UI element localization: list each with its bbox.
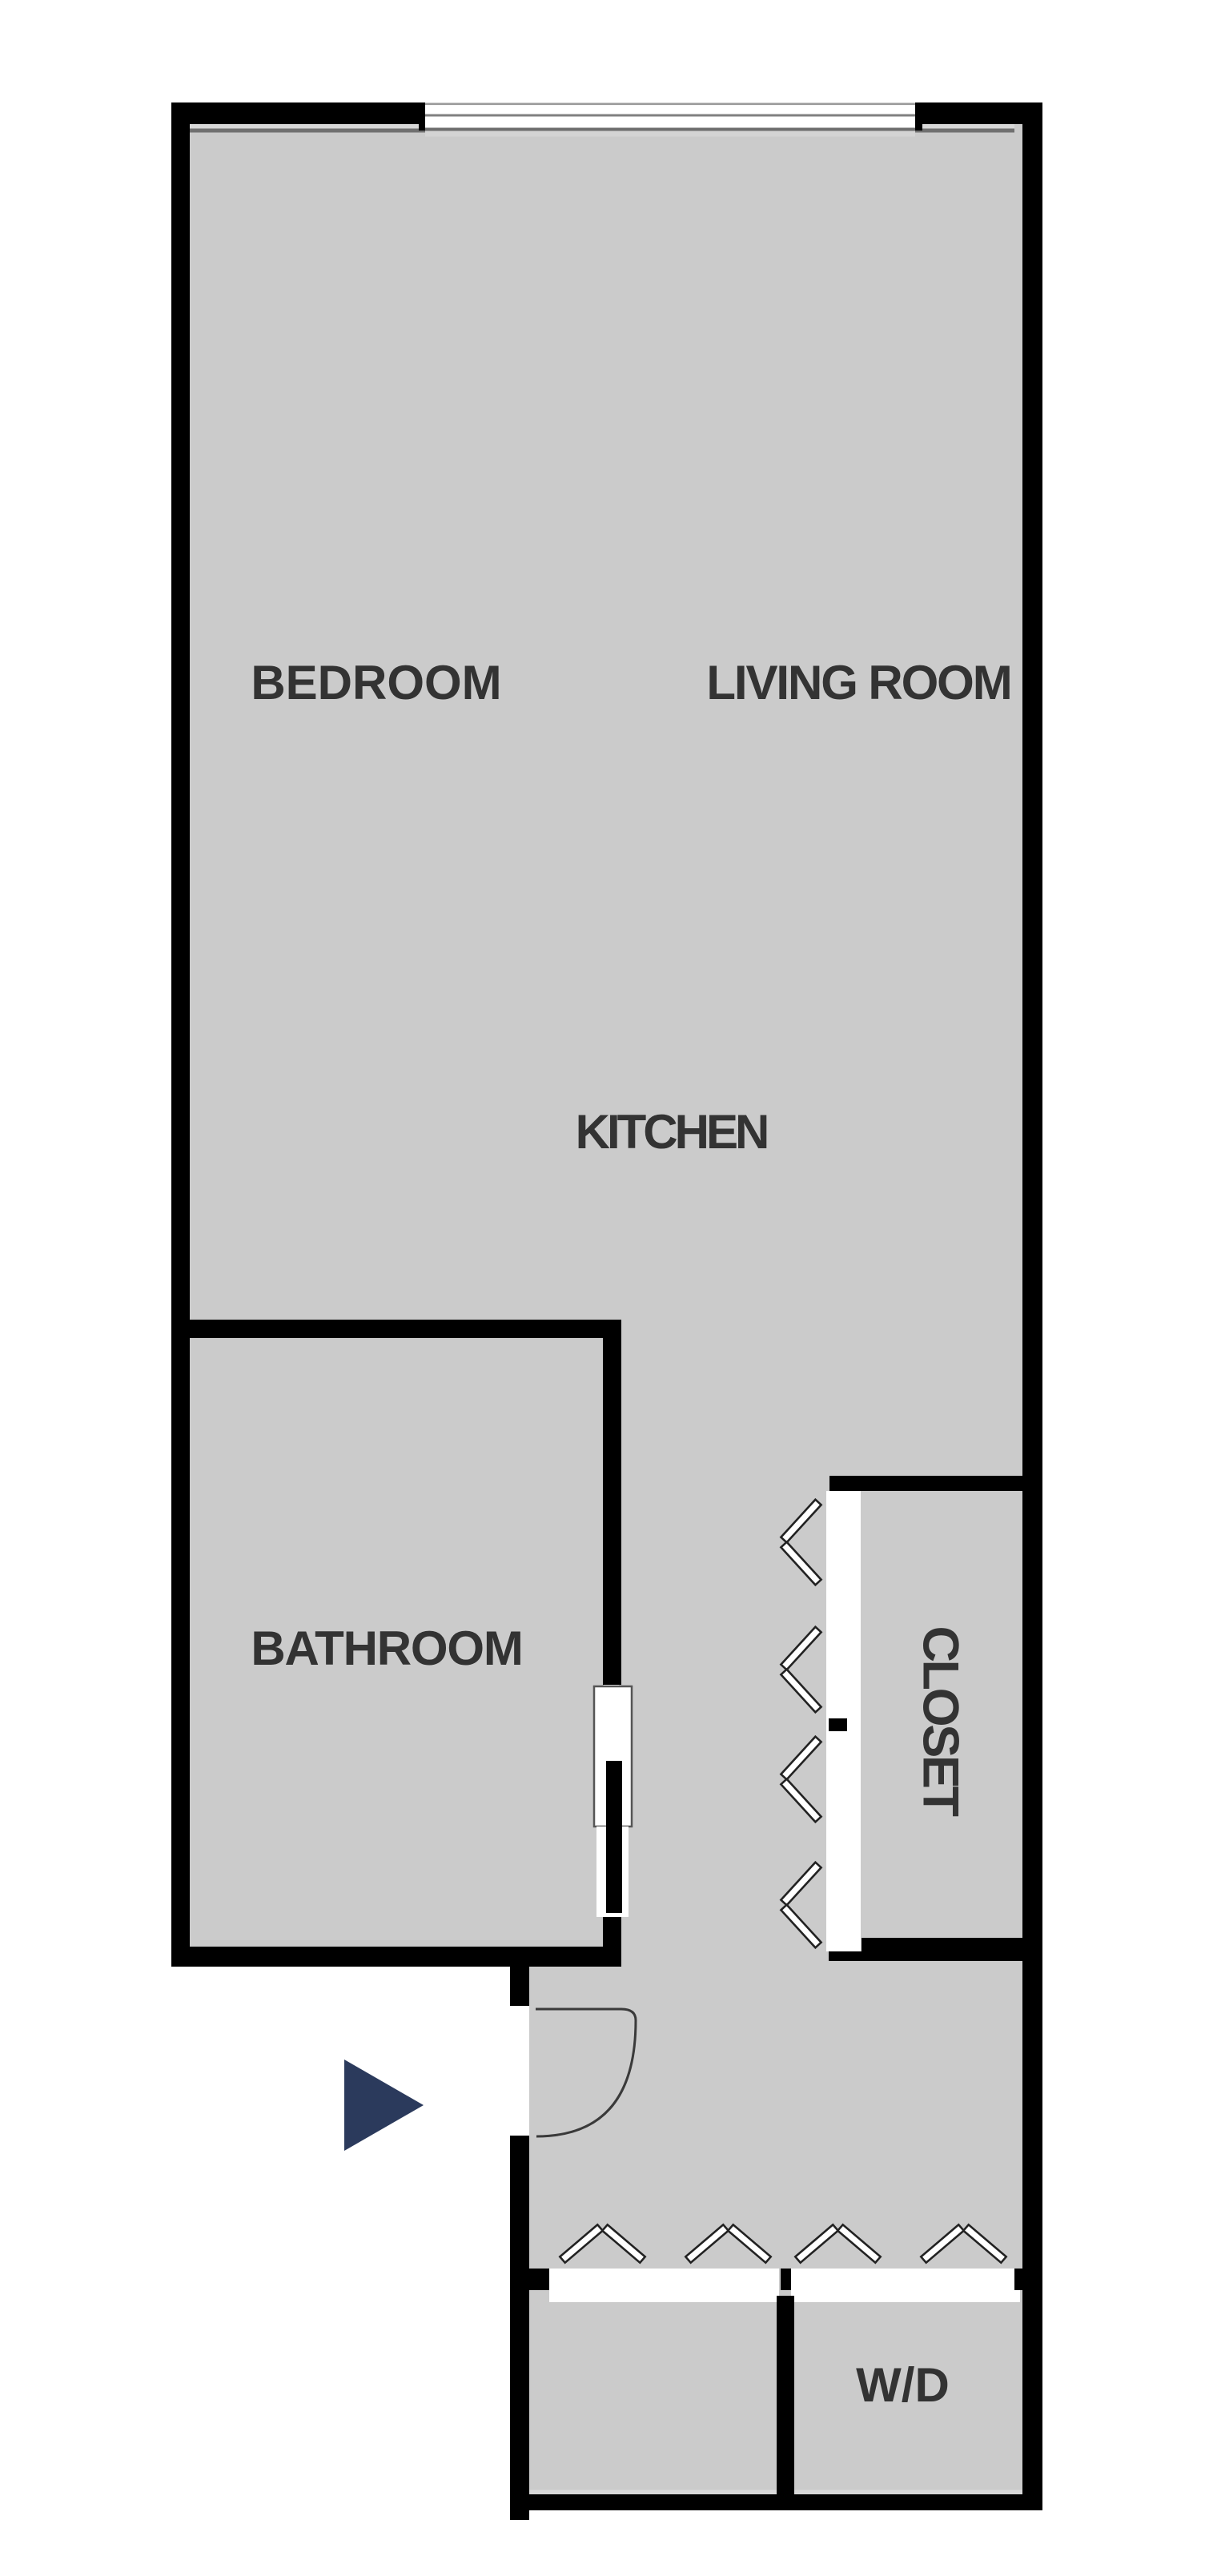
svg-text:BEDROOM: BEDROOM bbox=[251, 656, 501, 709]
svg-text:LIVING ROOM: LIVING ROOM bbox=[706, 656, 1010, 709]
svg-text:BATHROOM: BATHROOM bbox=[251, 1622, 522, 1675]
svg-text:KITCHEN: KITCHEN bbox=[576, 1105, 767, 1159]
svg-text:CLOSET: CLOSET bbox=[913, 1626, 969, 1816]
svg-text:W/D: W/D bbox=[856, 2358, 950, 2412]
